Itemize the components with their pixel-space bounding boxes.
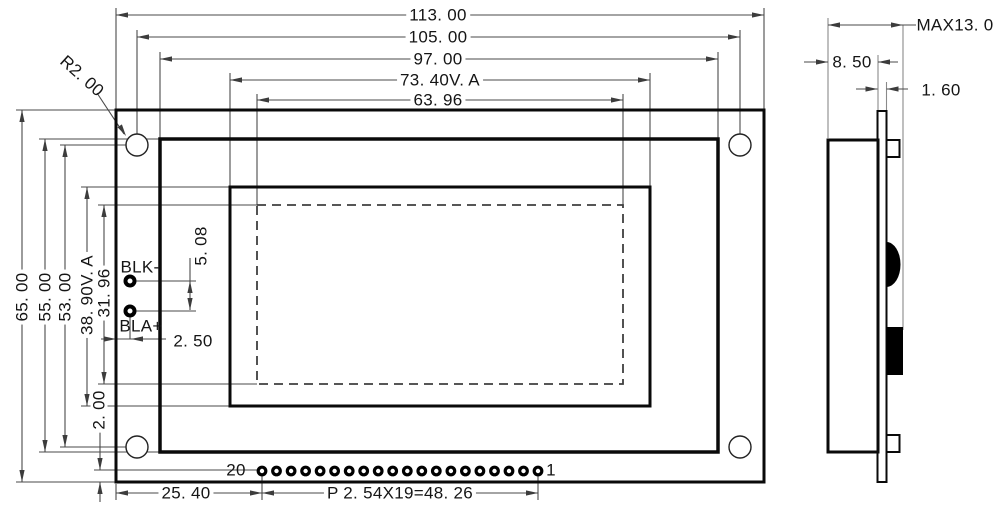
component-block [887, 327, 904, 375]
pin-20-label: 20 [226, 462, 246, 479]
active-area-dashed-outline [257, 205, 623, 384]
component-top [887, 140, 900, 157]
side-view [804, 18, 916, 482]
dim-bezel-width: 97. 00 [410, 51, 465, 68]
component-bump [887, 242, 901, 287]
bla-pad [126, 307, 135, 316]
pin-1-label: 1 [546, 462, 556, 479]
component-bottom [887, 435, 900, 452]
dim-body-depth: 8. 50 [829, 54, 874, 71]
mounting-hole-top-right [729, 134, 751, 156]
display-window-outline [230, 187, 650, 406]
mounting-hole-top-left [126, 134, 148, 156]
dim-pin-left-offset: 25. 40 [158, 485, 213, 502]
backlight-pads [126, 277, 135, 316]
pcb-board-outline [116, 110, 764, 482]
blk-pad [126, 277, 135, 286]
mounting-hole-bottom-left [126, 436, 148, 458]
mounting-hole-bottom-right [729, 436, 751, 458]
dim-max-thickness: MAX13. 0 [916, 17, 993, 34]
dim-active-area-height: 31. 96 [96, 265, 113, 320]
dim-viewing-area-height: 38. 90V. A [79, 252, 96, 338]
blk-pad-label: BLK- [121, 259, 160, 276]
mounting-holes [126, 134, 751, 458]
drawing-canvas [0, 0, 1000, 512]
dimension-lines-front [16, 8, 764, 502]
lcd-module-mechanical-drawing: 113. 00 105. 00 97. 00 73. 40V. A 63. 96… [0, 0, 1000, 512]
dim-pcb-thickness: 1. 60 [921, 82, 960, 99]
dim-pin-pitch-formula: P 2. 54X19=48. 26 [324, 485, 476, 502]
front-view [116, 110, 764, 482]
dim-hole-spacing-v: 53. 00 [57, 269, 74, 324]
dim-hole-spacing-h: 105. 00 [406, 29, 471, 46]
lcd-body-profile [828, 140, 878, 452]
bla-pad-label: BLA+ [119, 318, 162, 335]
dim-active-area-width: 63. 96 [410, 92, 465, 109]
dim-pad-edge-offset: 2. 50 [170, 333, 215, 350]
pin-pads [258, 467, 542, 475]
dim-bezel-height: 55. 00 [37, 269, 54, 324]
dim-board-width: 113. 00 [406, 7, 470, 24]
dim-pad-pitch: 5. 08 [193, 223, 210, 268]
dim-viewing-area-width: 73. 40V. A [397, 72, 483, 89]
dim-board-height: 65. 00 [14, 269, 31, 324]
dim-pin-row-offset: 2. 00 [91, 387, 108, 432]
